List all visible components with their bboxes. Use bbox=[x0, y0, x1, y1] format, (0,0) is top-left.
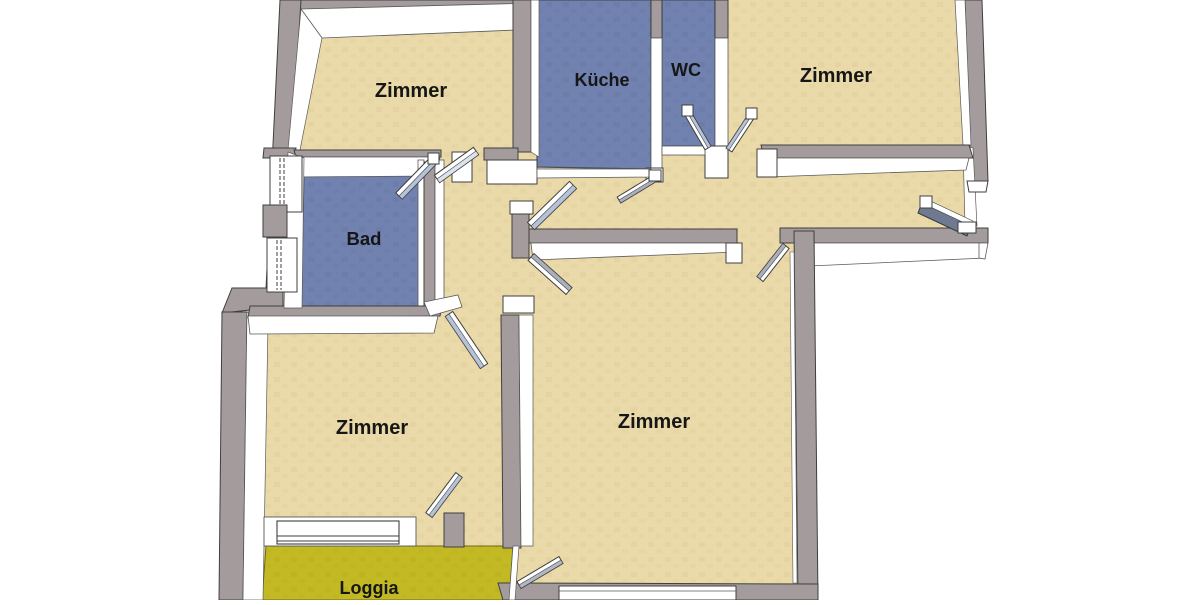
svg-text:Loggia: Loggia bbox=[340, 578, 400, 598]
svg-text:Bad: Bad bbox=[347, 228, 382, 249]
svg-text:Zimmer: Zimmer bbox=[375, 80, 447, 102]
svg-text:Küche: Küche bbox=[574, 70, 629, 90]
svg-text:WC: WC bbox=[671, 60, 701, 80]
svg-text:Zimmer: Zimmer bbox=[800, 65, 872, 87]
svg-text:Zimmer: Zimmer bbox=[336, 417, 408, 439]
svg-text:Zimmer: Zimmer bbox=[618, 411, 690, 433]
